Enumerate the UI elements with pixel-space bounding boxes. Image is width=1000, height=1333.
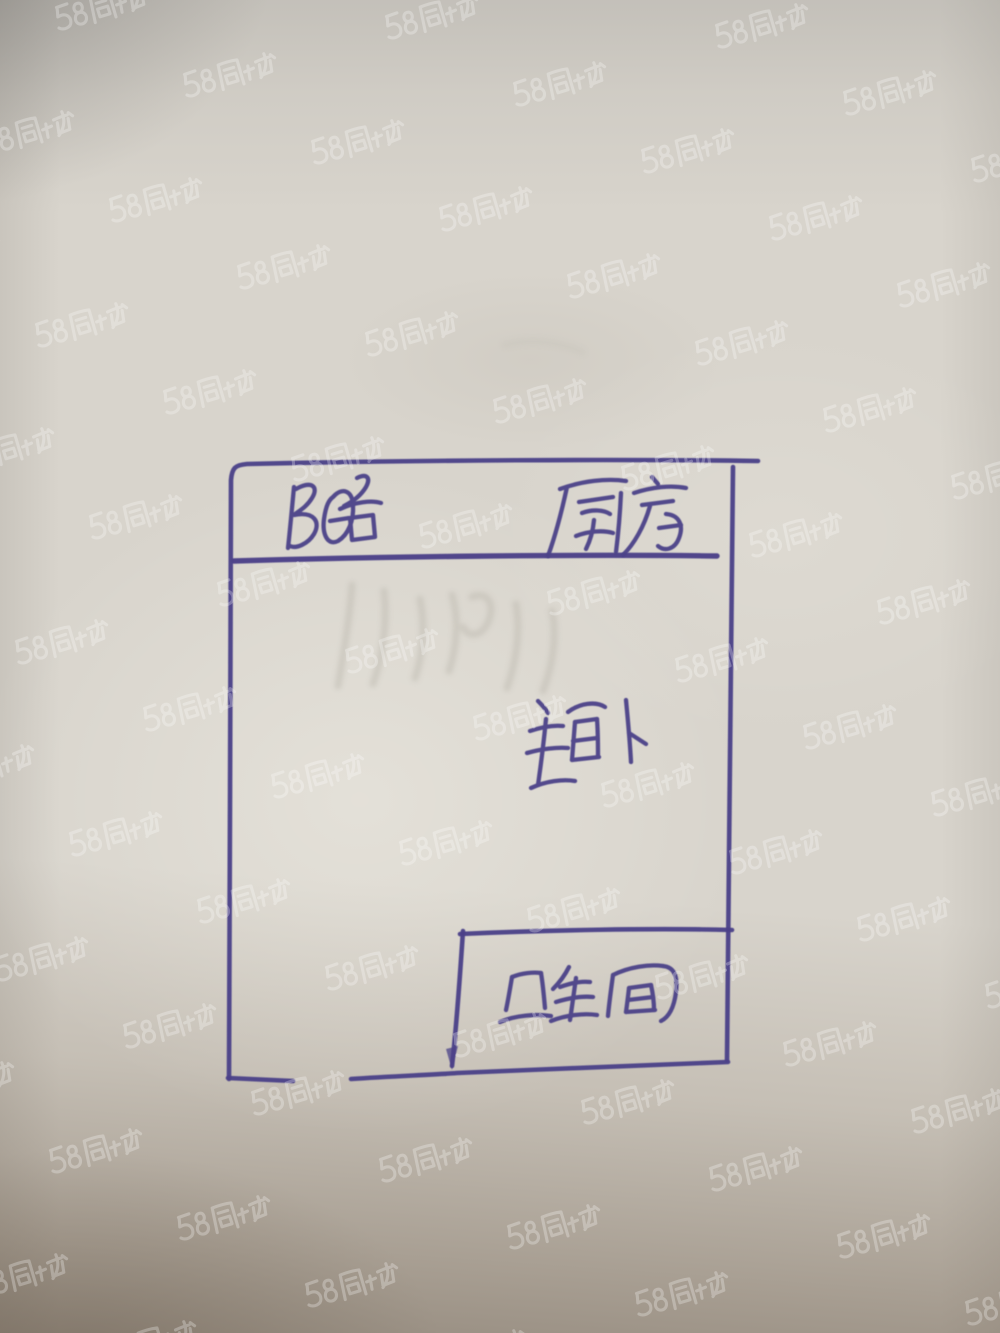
watermark xyxy=(14,618,111,666)
watermark xyxy=(48,1127,145,1175)
balcony-kitchen-divider xyxy=(234,555,717,561)
watermark xyxy=(714,2,811,50)
watermark xyxy=(0,426,57,474)
watermark xyxy=(896,261,993,309)
watermark xyxy=(930,770,1000,818)
watermark xyxy=(782,1020,879,1068)
floorplan-photo: 阳台 厨房 主卧 卫生间 xyxy=(0,0,1000,1333)
watermark xyxy=(364,310,461,358)
watermark xyxy=(492,377,589,425)
watermark xyxy=(108,176,205,224)
bathroom-wall-top xyxy=(460,929,732,934)
watermark xyxy=(122,1002,219,1050)
floor-plan-sketch xyxy=(0,0,1000,1333)
watermark xyxy=(102,1319,199,1333)
watermark xyxy=(236,243,333,291)
watermark xyxy=(580,1078,677,1126)
watermark xyxy=(432,1328,529,1333)
bathroom-wall-ink-wedge xyxy=(446,1046,458,1070)
handwriting-balcony xyxy=(288,476,381,548)
watermark xyxy=(398,819,495,867)
watermark xyxy=(634,1270,731,1318)
watermark xyxy=(418,502,515,550)
watermark xyxy=(822,386,919,434)
watermark xyxy=(802,703,899,751)
watermark xyxy=(566,252,663,300)
watermark xyxy=(304,1261,401,1309)
watermark xyxy=(0,234,3,282)
watermark xyxy=(674,636,771,684)
watermark xyxy=(452,1011,549,1059)
watermark xyxy=(964,1279,1000,1327)
watermark xyxy=(512,60,609,108)
handwriting-bathroom xyxy=(500,965,676,1022)
bathroom-wall-left xyxy=(452,931,463,1066)
watermark xyxy=(0,1252,71,1300)
watermark xyxy=(708,1145,805,1193)
watermark xyxy=(970,136,1000,184)
watermark xyxy=(324,944,421,992)
watermark xyxy=(694,319,791,367)
handwriting-master-bedroom xyxy=(527,700,646,788)
watermark xyxy=(162,368,259,416)
watermark xyxy=(842,69,939,117)
watermark xyxy=(768,194,865,242)
watermark xyxy=(378,1136,475,1184)
watermark xyxy=(910,1087,1000,1135)
watermark xyxy=(472,694,569,742)
watermark xyxy=(438,185,535,233)
watermark xyxy=(600,761,697,809)
watermark xyxy=(728,828,825,876)
watermark xyxy=(88,493,185,541)
watermark xyxy=(310,118,407,166)
watermark xyxy=(0,743,37,791)
watermark xyxy=(196,877,293,925)
watermark-layer xyxy=(0,0,1000,1333)
watermark xyxy=(290,435,387,483)
watermark xyxy=(344,627,441,675)
watermark xyxy=(250,1069,347,1117)
watermark xyxy=(0,109,77,157)
watermark xyxy=(640,127,737,175)
wall-bottom-right-segment xyxy=(351,1062,728,1079)
watermark xyxy=(620,444,717,492)
watermark xyxy=(34,301,131,349)
wall-bottom-left-segment xyxy=(228,1078,293,1081)
watermark xyxy=(176,1194,273,1242)
watermark xyxy=(654,953,751,1001)
watermark xyxy=(0,935,91,983)
watermark xyxy=(384,0,481,40)
watermark xyxy=(546,569,643,617)
watermark xyxy=(748,511,845,559)
watermark xyxy=(950,453,1000,501)
handwriting-kitchen xyxy=(548,477,686,556)
watermark xyxy=(876,578,973,626)
watermark xyxy=(54,0,151,31)
watermark xyxy=(836,1212,933,1260)
watermark xyxy=(856,895,953,943)
watermark xyxy=(984,962,1000,1010)
watermark xyxy=(506,1203,603,1251)
watermark xyxy=(0,1060,17,1108)
watermark xyxy=(182,51,279,99)
watermark xyxy=(68,810,165,858)
watermark xyxy=(270,752,367,800)
watermark xyxy=(526,886,623,934)
watermark xyxy=(142,685,239,733)
